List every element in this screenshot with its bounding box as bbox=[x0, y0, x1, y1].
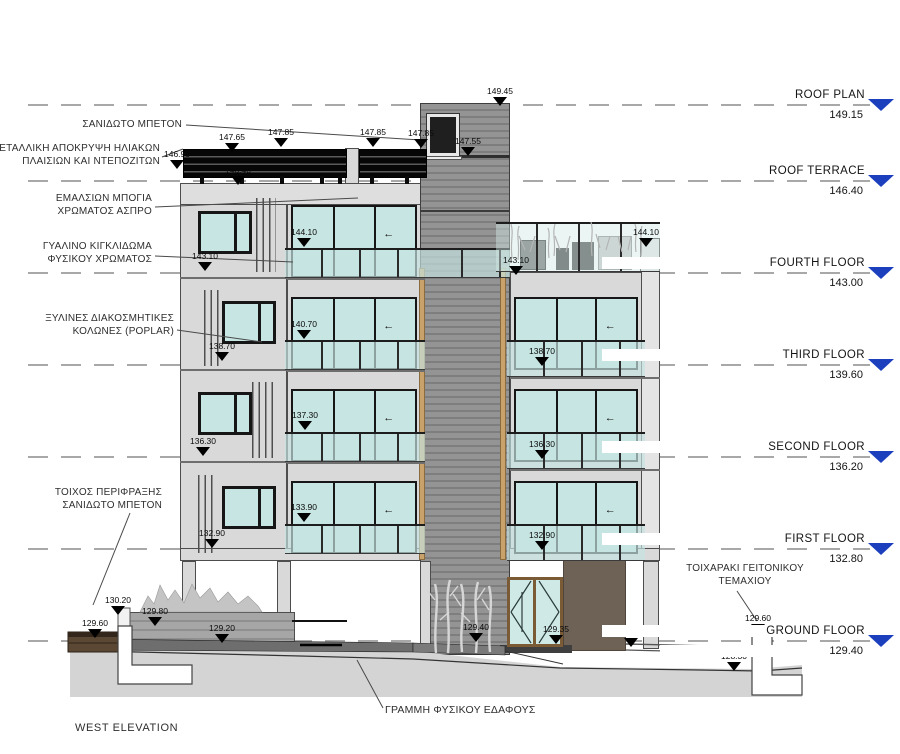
spot-triangle-icon bbox=[88, 629, 102, 638]
entrance-door-mullion bbox=[533, 577, 536, 647]
spot-elevation-18: 133.90 bbox=[291, 502, 317, 522]
slide-arrow-icon: ← bbox=[605, 505, 616, 516]
spot-triangle-icon bbox=[461, 147, 475, 156]
level-arrow-icon-5 bbox=[868, 543, 894, 555]
slab-line-5 bbox=[287, 462, 425, 464]
tower-base-trim bbox=[420, 561, 431, 654]
level-elevation-3: 139.60 bbox=[660, 369, 866, 381]
spot-elevation-21: 130.20 bbox=[105, 595, 131, 615]
spot-triangle-icon bbox=[297, 513, 311, 522]
spot-triangle-icon bbox=[493, 97, 507, 106]
spot-elevation-20: 132.90 bbox=[529, 530, 555, 550]
left-window-0 bbox=[198, 211, 252, 254]
spot-triangle-icon bbox=[170, 160, 184, 169]
left-window-3 bbox=[222, 486, 276, 529]
level-arrow-icon-2 bbox=[868, 267, 894, 279]
level-name-6: GROUND FLOOR bbox=[602, 625, 868, 637]
spot-elevation-11: 143.10 bbox=[503, 255, 529, 275]
spot-triangle-icon bbox=[225, 143, 239, 152]
spot-triangle-icon bbox=[274, 138, 288, 147]
level-arrow-icon-6 bbox=[868, 635, 894, 647]
spot-triangle-icon bbox=[215, 352, 229, 361]
ground-line-label: ΓΡΑΜΜΗ ΦΥΣΙΚΟΥ ΕΔΑΦΟΥΣ bbox=[385, 704, 536, 717]
screen-post-0 bbox=[200, 176, 204, 184]
west-elevation-drawing: ROOF PLAN149.15ROOF TERRACE146.40FOURTH … bbox=[0, 0, 900, 754]
spot-elevation-26: 129.35 bbox=[543, 624, 569, 644]
slide-arrow-icon: ← bbox=[605, 413, 616, 424]
poplar-cluster-0 bbox=[256, 198, 276, 272]
spot-triangle-icon bbox=[535, 357, 549, 366]
level-elevation-2: 143.00 bbox=[660, 277, 866, 289]
screen-post-3 bbox=[320, 176, 324, 184]
label-xylines-kolones: ΞΥΛΙΝΕΣ ΔΙΑΚΟΣΜΗΤΙΚΕΣΚΟΛΩΝΕΣ (POPLAR) bbox=[45, 313, 174, 338]
slide-arrow-icon: ← bbox=[383, 321, 394, 332]
slide-arrow-icon: ← bbox=[383, 505, 394, 516]
screen-post-4 bbox=[338, 176, 342, 184]
left-window-1 bbox=[222, 301, 276, 344]
spot-elevation-14: 138.70 bbox=[529, 346, 555, 366]
level-elevation-4: 136.20 bbox=[660, 461, 866, 473]
spot-triangle-icon bbox=[535, 541, 549, 550]
level-arrow-icon-4 bbox=[868, 451, 894, 463]
spot-elevation-0: 149.45 bbox=[487, 86, 513, 106]
parapet-band bbox=[180, 183, 425, 205]
level-arrow-icon-0 bbox=[868, 99, 894, 111]
spot-elevation-16: 136.30 bbox=[190, 436, 216, 456]
level-name-1: ROOF TERRACE bbox=[602, 165, 868, 177]
poplar-post-left bbox=[419, 268, 425, 560]
spot-elevation-13: 138.70 bbox=[209, 341, 235, 361]
roof-screen-left bbox=[183, 149, 347, 178]
label-emalsion-mpogia: ΕΜΑΛΣΙΩΝ ΜΠΟΓΙΑΧΡΩΜΑΤΟΣ ΑΣΠΡΟ bbox=[56, 193, 152, 218]
spot-elevation-9: 144.10 bbox=[633, 227, 659, 247]
slide-arrow-icon: ← bbox=[383, 229, 394, 240]
spot-triangle-icon bbox=[297, 238, 311, 247]
slab-line-4 bbox=[287, 370, 425, 372]
spot-elevation-6: 146.90 bbox=[164, 149, 190, 169]
spot-triangle-icon bbox=[297, 330, 311, 339]
spot-elevation-15: 137.30 bbox=[292, 410, 318, 430]
spot-elevation-23: 129.60 bbox=[82, 618, 108, 638]
window-mullion bbox=[258, 489, 261, 526]
screen-post-6 bbox=[405, 176, 409, 184]
entrance-brown-wall bbox=[563, 560, 626, 651]
spot-elevation-1: 147.65 bbox=[219, 132, 245, 152]
poplar-cluster-2 bbox=[252, 382, 276, 458]
level-name-2: FOURTH FLOOR bbox=[602, 257, 868, 269]
spot-elevation-7: 146.40 bbox=[225, 165, 251, 185]
slab-line-6 bbox=[510, 377, 660, 379]
spot-triangle-icon bbox=[148, 617, 162, 626]
tower-band-2 bbox=[420, 210, 510, 212]
slab-line-3 bbox=[287, 278, 425, 280]
label-toixos-perifraksis: ΤΟΙΧΟΣ ΠΕΡΙΦΡΑΞΗΣΣΑΝΙΔΩΤΟ ΜΠΕΤΟΝ bbox=[55, 487, 162, 512]
spot-triangle-icon bbox=[196, 447, 210, 456]
level-arrow-icon-3 bbox=[868, 359, 894, 371]
window-mullion bbox=[234, 395, 237, 432]
stair-tower bbox=[420, 103, 510, 655]
spot-triangle-icon bbox=[535, 450, 549, 459]
label-sanidoto-beton: ΣΑΝΙΔΩΤΟ ΜΠΕΤΟΝ bbox=[82, 119, 182, 132]
drawing-title: WEST ELEVATION bbox=[75, 722, 178, 734]
spot-triangle-icon bbox=[469, 633, 483, 642]
label-toixaraki-geitonikou: ΤΟΙΧΑΡΑΚΙ ΓΕΙΤΟΝΙΚΟΥΤΕΜΑΧΙΟΥ bbox=[665, 563, 825, 588]
screen-post-2 bbox=[280, 176, 284, 184]
spot-triangle-icon bbox=[205, 539, 219, 548]
middle-balustrade-2 bbox=[285, 432, 425, 462]
spot-triangle-icon bbox=[727, 662, 741, 671]
right-corner-trim bbox=[641, 238, 660, 560]
spot-triangle-icon bbox=[624, 638, 638, 647]
middle-balustrade-1 bbox=[285, 340, 425, 370]
spot-elevation-17: 136.30 bbox=[529, 439, 555, 459]
label-metalliki-apokrypsi: ΜΕΤΑΛΛΙΚΗ ΑΠΟΚΡΥΨΗ ΗΛΙΑΚΩΝΠΛΑΙΣΙΩΝ ΚΑΙ Ν… bbox=[0, 143, 160, 168]
middle-balustrade-3 bbox=[285, 524, 425, 554]
spot-elevation-19: 132.90 bbox=[199, 528, 225, 548]
level-elevation-6: 129.40 bbox=[660, 645, 866, 657]
spot-elevation-25: 129.40 bbox=[463, 622, 489, 642]
spot-elevation-22: 129.80 bbox=[142, 606, 168, 626]
slab-line-0 bbox=[180, 277, 287, 279]
roof-door-sill bbox=[424, 156, 462, 160]
level-name-5: FIRST FLOOR bbox=[602, 533, 868, 545]
spot-elevation-10: 143.10 bbox=[192, 251, 218, 271]
level-name-0: ROOF PLAN bbox=[602, 89, 868, 101]
spot-triangle-icon bbox=[215, 634, 229, 643]
left-window-2 bbox=[198, 392, 252, 435]
slab-line-7 bbox=[510, 469, 660, 471]
spot-triangle-icon bbox=[549, 635, 563, 644]
roof-screen-right bbox=[359, 149, 427, 178]
poplar-post-right bbox=[500, 268, 506, 560]
spot-triangle-icon bbox=[509, 266, 523, 275]
screen-post-5 bbox=[370, 176, 374, 184]
spot-elevation-24: 129.20 bbox=[209, 623, 235, 643]
spot-triangle-icon bbox=[639, 238, 653, 247]
level-arrow-icon-1 bbox=[868, 175, 894, 187]
level-elevation-0: 149.15 bbox=[660, 109, 866, 121]
level-name-3: THIRD FLOOR bbox=[602, 349, 868, 361]
level-elevation-1: 146.40 bbox=[660, 185, 866, 197]
middle-balustrade-0 bbox=[285, 248, 425, 278]
spot-triangle-icon bbox=[414, 139, 428, 148]
spot-triangle-icon bbox=[231, 176, 245, 185]
spot-elevation-5: 147.55 bbox=[455, 136, 481, 156]
spot-elevation-12: 140.70 bbox=[291, 319, 317, 339]
spot-elevation-4: 147.85 bbox=[408, 128, 434, 148]
slab-line-1 bbox=[180, 369, 287, 371]
window-mullion bbox=[234, 214, 237, 251]
slide-arrow-icon: ← bbox=[605, 321, 616, 332]
spot-elevation-3: 147.85 bbox=[360, 127, 386, 147]
slab-line-2 bbox=[180, 461, 287, 463]
level-name-4: SECOND FLOOR bbox=[602, 441, 868, 453]
spot-triangle-icon bbox=[366, 138, 380, 147]
spot-triangle-icon bbox=[198, 262, 212, 271]
spot-triangle-icon bbox=[298, 421, 312, 430]
spot-elevation-2: 147.85 bbox=[268, 127, 294, 147]
label-gyalino-kigklidoma: ΓΥΑΛΙΝΟ ΚΙΓΚΛΙΔΩΜΑΦΥΣΙΚΟΥ ΧΡΩΜΑΤΟΣ bbox=[43, 241, 152, 266]
spot-elevation-8: 144.10 bbox=[291, 227, 317, 247]
window-mullion bbox=[258, 304, 261, 341]
spot-triangle-icon bbox=[111, 606, 125, 615]
screen-gap-post bbox=[345, 148, 359, 184]
slide-arrow-icon: ← bbox=[383, 413, 394, 424]
